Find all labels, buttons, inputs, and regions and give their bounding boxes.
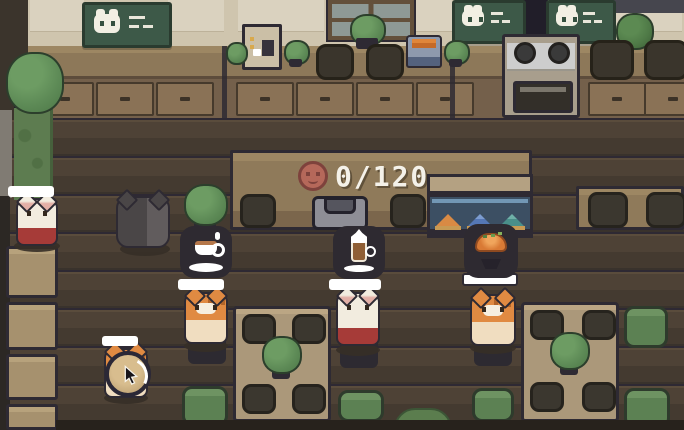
cabinet-drawer[interactable] <box>356 82 414 116</box>
table-plant <box>262 336 302 374</box>
left-table <box>6 354 58 400</box>
cat-muzzle <box>196 303 216 314</box>
garnish <box>491 234 495 237</box>
potted-plant-large <box>6 52 64 114</box>
steam <box>215 232 220 240</box>
bowl <box>481 259 501 269</box>
cursor-icon <box>122 365 140 385</box>
toaster[interactable] <box>406 35 442 68</box>
cabinet-drawer[interactable] <box>236 82 294 116</box>
wall-edge <box>0 110 12 198</box>
seat-cushion <box>472 388 514 422</box>
counter-plant <box>226 42 248 65</box>
espresso-lights <box>250 37 254 41</box>
cat-face-eyes <box>100 21 104 26</box>
cabinet-drawer[interactable] <box>588 82 646 116</box>
seat-cushion <box>624 306 668 348</box>
stove-burner <box>514 42 536 64</box>
counter-plate <box>390 194 426 228</box>
cup-handle <box>211 243 225 257</box>
cat-face-eyes <box>562 17 566 22</box>
sandwich-orange <box>435 214 461 230</box>
cabinet-drawer[interactable] <box>296 82 354 116</box>
cat-eyes <box>27 211 31 216</box>
kitchen-counter-top <box>28 46 684 76</box>
kitchen-pot[interactable] <box>590 40 634 80</box>
cat-eyes <box>347 305 351 310</box>
table-plate <box>292 384 326 414</box>
plant-pot <box>289 59 302 67</box>
coffee-cup-icon <box>189 263 223 272</box>
menu-line <box>129 25 139 28</box>
table-plant <box>550 332 590 370</box>
progress-bar <box>178 279 224 290</box>
whipped-cream <box>351 229 367 243</box>
toast-slices <box>412 39 436 48</box>
menu-board-left <box>82 2 172 48</box>
left-table <box>6 246 58 298</box>
order-counter-hud: 0/120 <box>298 158 438 194</box>
progress-bar <box>329 279 381 290</box>
cabinet-drawer[interactable] <box>644 82 684 116</box>
cat-face-icon <box>94 14 120 33</box>
table-plate <box>582 310 616 340</box>
serving-tray[interactable] <box>312 196 368 230</box>
ceiling-shadow <box>604 0 684 13</box>
left-table <box>6 404 58 430</box>
counter-plate <box>588 192 628 228</box>
stove-burner <box>548 42 570 64</box>
speech-bar <box>102 336 138 346</box>
display-case-top <box>427 174 533 194</box>
menu-line <box>491 12 503 15</box>
wall-panel <box>416 0 452 32</box>
speech-bubble-katsu[interactable] <box>464 224 518 278</box>
counter-plate <box>240 194 276 228</box>
tray-handle <box>324 197 356 214</box>
table-plate <box>530 382 564 412</box>
menu-line <box>129 16 145 19</box>
seat-cushion <box>338 390 384 422</box>
staff-cat[interactable] <box>16 198 58 246</box>
cat-face-icon <box>556 10 578 26</box>
speech-bubble-latte[interactable] <box>333 226 385 279</box>
espresso-window <box>262 40 274 56</box>
speech-bubble-coffee[interactable] <box>180 226 232 278</box>
oven-door[interactable] <box>513 81 573 113</box>
left-table <box>6 302 58 350</box>
bottom-bench <box>56 420 684 430</box>
customer-cat-left[interactable] <box>184 292 228 344</box>
wall-panel <box>168 0 224 32</box>
cat-cafe-scene: 0/120 <box>0 0 684 430</box>
stove[interactable] <box>502 34 580 118</box>
cat-eyes <box>482 307 486 312</box>
espresso-machine[interactable] <box>242 24 282 70</box>
cat-muzzle <box>483 305 503 316</box>
kitchen-pot[interactable] <box>366 44 404 80</box>
menu-line <box>583 20 591 23</box>
cat-face-icon <box>462 10 484 26</box>
cat-face-eyes <box>468 17 472 22</box>
kitchen-pot[interactable] <box>316 44 354 80</box>
potted-plant <box>184 184 228 226</box>
clock-icon[interactable] <box>105 351 151 397</box>
cat-eyes <box>195 305 199 310</box>
cabinet-drawer[interactable] <box>416 82 474 116</box>
cabinet-drawer[interactable] <box>96 82 154 116</box>
speech-bar <box>8 186 54 197</box>
kitchen-cabinets <box>28 76 684 118</box>
coin-icon <box>298 161 328 191</box>
order-counter-value: 0/120 <box>335 160 429 193</box>
plant-pot <box>449 59 462 67</box>
kitchen-pot[interactable] <box>644 40 684 80</box>
table-plate <box>582 382 616 412</box>
customer-cat-right[interactable] <box>470 294 516 346</box>
espresso-cup <box>253 49 261 56</box>
cabinet-drawer[interactable] <box>156 82 214 116</box>
black-cat[interactable] <box>116 196 170 248</box>
table-plate <box>292 314 326 344</box>
table-plate <box>242 384 276 414</box>
wall-panel <box>30 0 84 32</box>
cup-handle <box>365 246 376 257</box>
menu-line <box>491 20 499 23</box>
menu-line <box>583 12 595 15</box>
counter-plate <box>646 192 684 228</box>
latte-icon <box>344 265 374 272</box>
customer-cat-center[interactable] <box>336 292 380 346</box>
